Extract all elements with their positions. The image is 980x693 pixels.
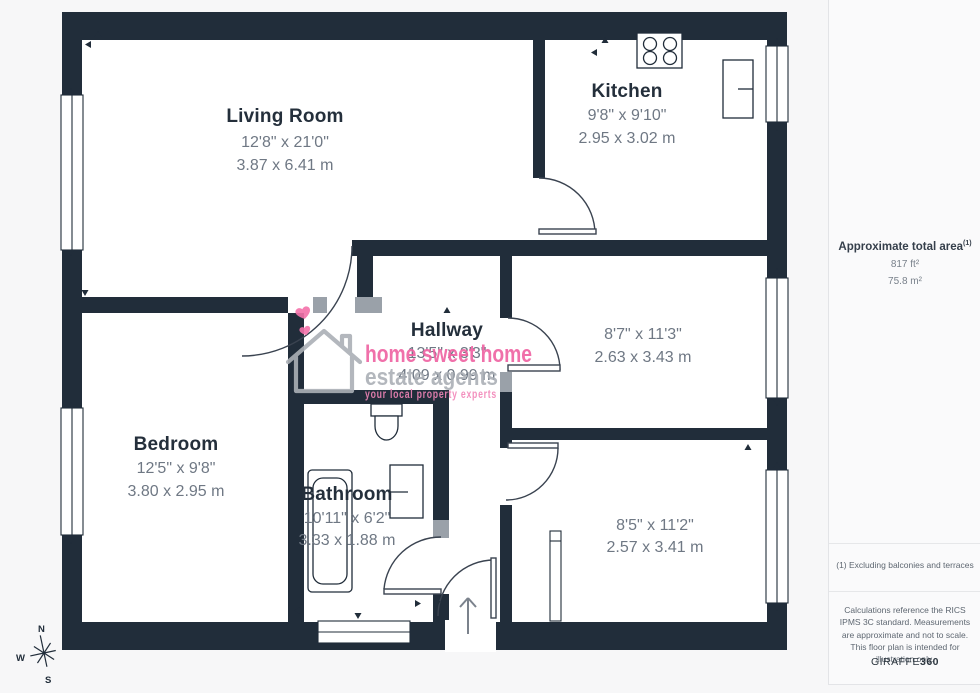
stove-icon xyxy=(637,33,682,68)
label-bedroom: Bedroom 12'5" x 9'8" 3.80 x 2.95 m xyxy=(128,434,225,500)
footnote-text: (1) Excluding balconies and terraces xyxy=(833,560,977,570)
window-bedroom-left xyxy=(61,408,83,535)
svg-text:2.57 x 3.41 m: 2.57 x 3.41 m xyxy=(607,539,704,556)
svg-text:12'8" x 21'0": 12'8" x 21'0" xyxy=(241,134,329,151)
sink-icon xyxy=(390,465,423,518)
sidebar-divider xyxy=(829,591,980,592)
label-living-room: Living Room 12'8" x 21'0" 3.87 x 6.41 m xyxy=(226,106,343,174)
cupboard-icon xyxy=(550,531,561,621)
svg-text:2.63 x 3.43 m: 2.63 x 3.43 m xyxy=(595,349,692,366)
entrance-opening xyxy=(445,620,496,652)
area-footnote-ref: (1) xyxy=(963,240,972,247)
svg-text:3.87 x 6.41 m: 3.87 x 6.41 m xyxy=(237,157,334,174)
window-room1-right xyxy=(766,278,788,398)
floorplan-drawing: Living Room 12'8" x 21'0" 3.87 x 6.41 m … xyxy=(0,0,830,693)
svg-text:2.95 x 3.02 m: 2.95 x 3.02 m xyxy=(579,130,676,147)
svg-text:3.33 x 1.88 m: 3.33 x 1.88 m xyxy=(299,532,396,549)
svg-text:9'8" x 9'10": 9'8" x 9'10" xyxy=(588,107,667,124)
compass-icon: N W S xyxy=(16,624,59,686)
compass-north-label: N xyxy=(38,624,45,635)
compass-south-label: S xyxy=(45,675,51,686)
floorplan-page: Living Room 12'8" x 21'0" 3.87 x 6.41 m … xyxy=(0,0,980,693)
window-bathroom-bottom xyxy=(318,621,410,643)
window-room2-right xyxy=(766,470,788,603)
compass-west-label: W xyxy=(16,653,25,664)
label-bathroom: Bathroom 10'11" x 6'2" 3.33 x 1.88 m xyxy=(299,484,396,549)
svg-text:Bedroom: Bedroom xyxy=(134,434,219,455)
window-living-left xyxy=(61,95,83,250)
info-sidebar: Approximate total area(1) 817 ft² 75.8 m… xyxy=(828,0,980,685)
svg-text:Living Room: Living Room xyxy=(226,106,343,127)
total-area-title: Approximate total area(1) xyxy=(829,240,980,253)
sidebar-divider xyxy=(829,543,980,544)
giraffe360-logo: GIRAFFE360 xyxy=(829,656,980,668)
svg-text:8'7" x 11'3": 8'7" x 11'3" xyxy=(604,326,682,343)
svg-text:3.80 x 2.95 m: 3.80 x 2.95 m xyxy=(128,483,225,500)
svg-text:Hallway: Hallway xyxy=(411,320,483,341)
svg-text:12'5" x 9'8": 12'5" x 9'8" xyxy=(137,460,216,477)
watermark-tagline: your local property experts xyxy=(365,387,497,401)
kitchen-appliance-icon xyxy=(723,60,753,118)
window-kitchen-right xyxy=(766,46,788,122)
total-area-imperial: 817 ft² xyxy=(829,259,980,270)
total-area-metric: 75.8 m² xyxy=(829,276,980,287)
label-kitchen: Kitchen 9'8" x 9'10" 2.95 x 3.02 m xyxy=(579,81,676,147)
svg-text:8'5" x 11'2": 8'5" x 11'2" xyxy=(616,517,694,534)
svg-text:10'11" x 6'2": 10'11" x 6'2" xyxy=(304,510,391,527)
svg-text:Bathroom: Bathroom xyxy=(301,484,392,505)
svg-text:Kitchen: Kitchen xyxy=(591,81,662,102)
total-area-block: Approximate total area(1) 817 ft² 75.8 m… xyxy=(829,240,980,287)
